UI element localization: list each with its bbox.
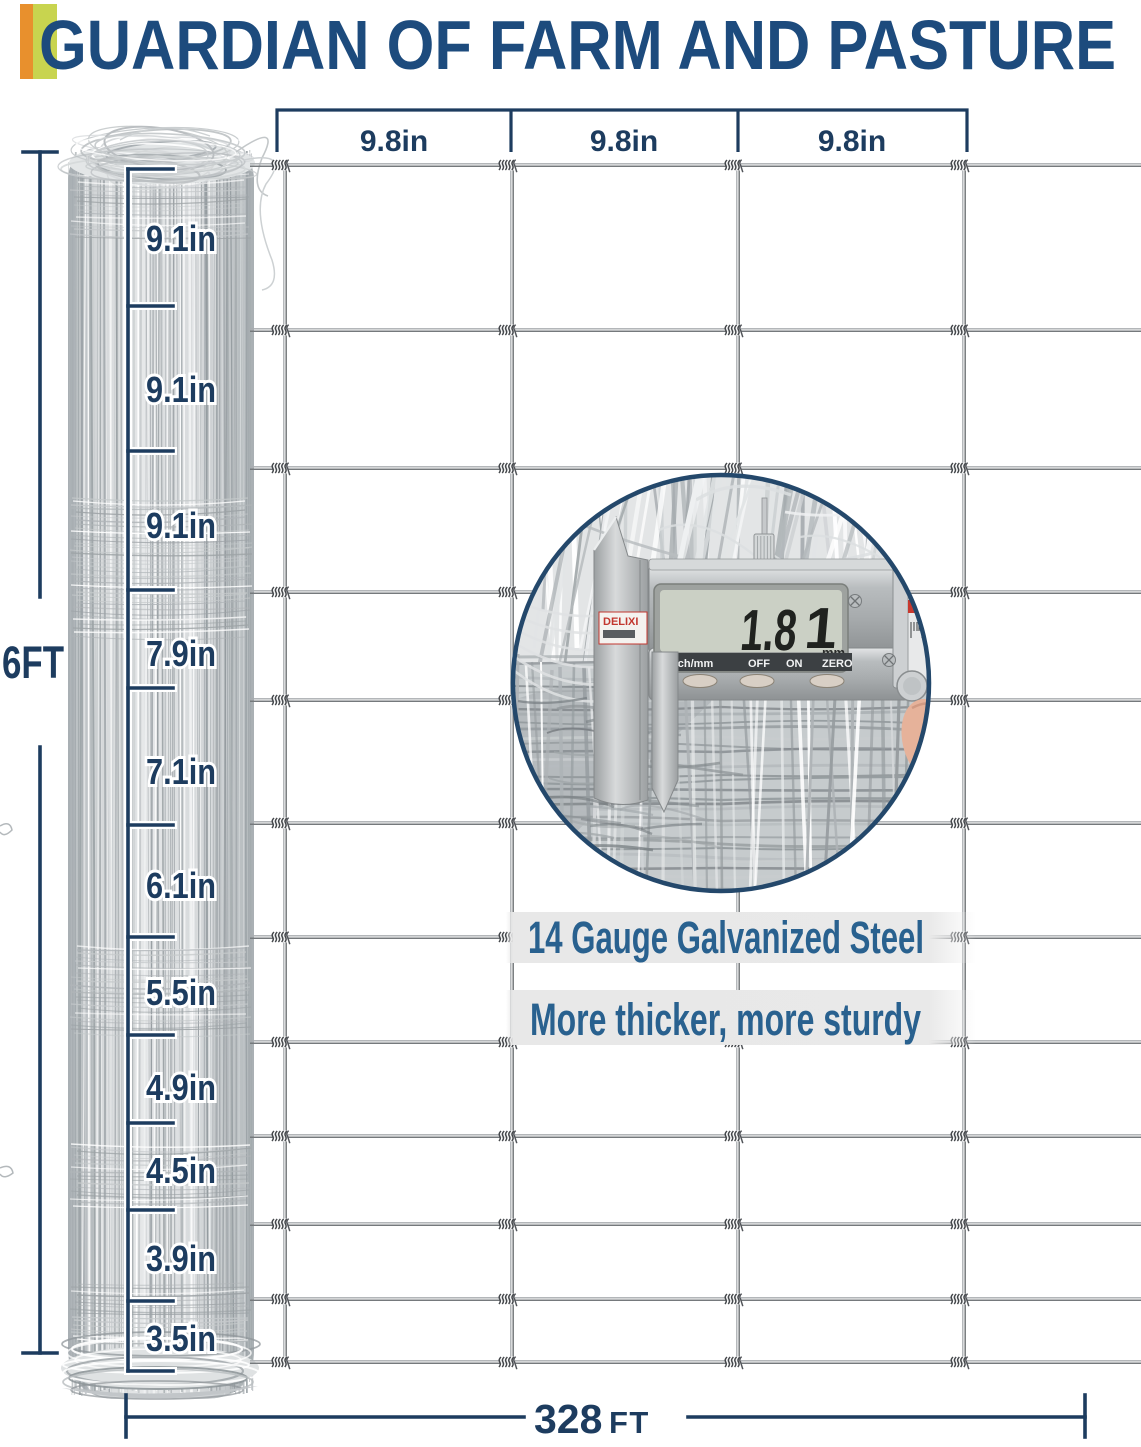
svg-text:6.1in: 6.1in [146,865,216,906]
svg-text:OFF: OFF [748,658,770,670]
svg-text:FT: FT [609,1405,650,1440]
svg-text:9.8in: 9.8in [818,125,886,158]
svg-text:328: 328 [534,1396,602,1442]
svg-text:4.5in: 4.5in [146,1150,216,1191]
svg-text:DELIXI: DELIXI [603,616,638,628]
svg-text:9.8in: 9.8in [360,125,428,158]
svg-text:9.1in: 9.1in [146,505,216,546]
svg-text:GUARDIAN OF FARM AND PASTURE: GUARDIAN OF FARM AND PASTURE [39,6,1116,84]
svg-text:6FT: 6FT [2,637,64,688]
svg-text:More thicker, more sturdy: More thicker, more sturdy [530,994,921,1045]
svg-text:9.8in: 9.8in [590,125,658,158]
svg-text:5.5in: 5.5in [146,972,216,1013]
svg-text:ON: ON [786,658,803,670]
svg-text:14 Gauge Galvanized Steel: 14 Gauge Galvanized Steel [528,912,924,963]
svg-text:7.1in: 7.1in [146,751,216,792]
svg-text:9.1in: 9.1in [146,218,216,259]
svg-text:3.5in: 3.5in [146,1318,216,1359]
svg-text:7.9in: 7.9in [146,633,216,674]
svg-text:3.9in: 3.9in [146,1238,216,1279]
svg-text:4.9in: 4.9in [146,1067,216,1108]
svg-text:ZERO: ZERO [822,658,853,670]
svg-text:9.1in: 9.1in [146,369,216,410]
